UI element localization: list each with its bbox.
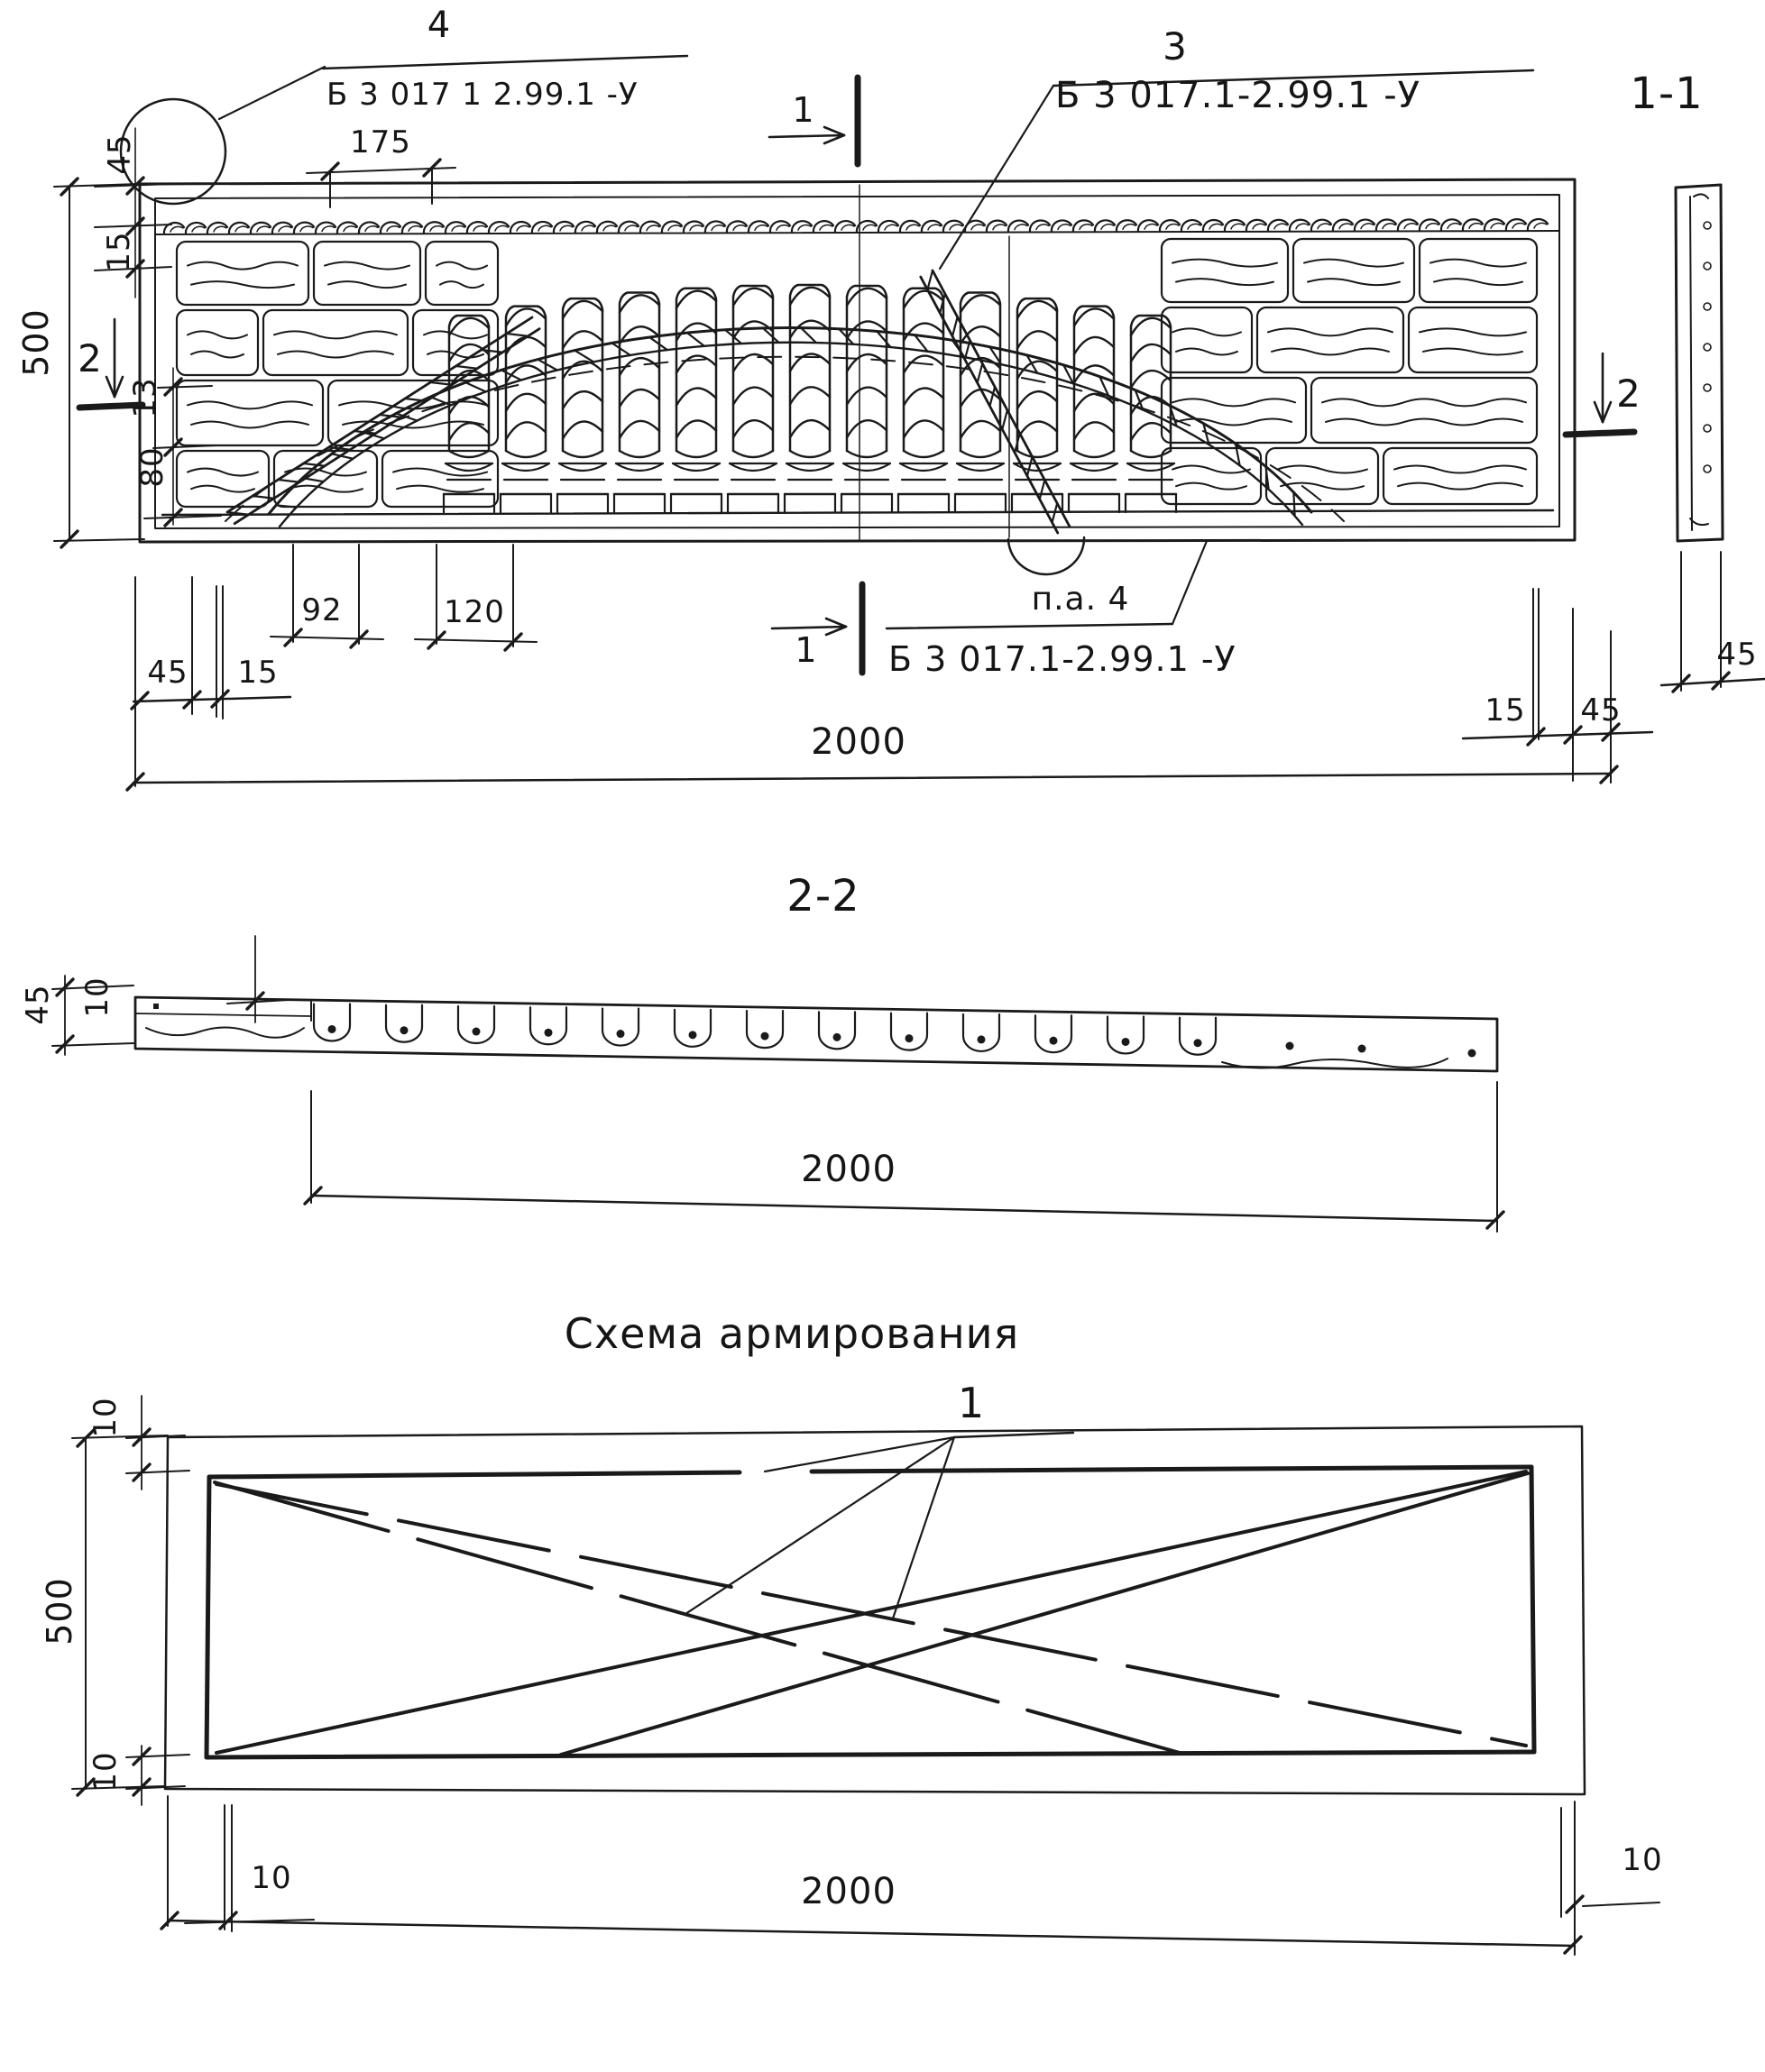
section-1-1-title: 1-1 — [1630, 72, 1703, 115]
callout-pa4-label: п.а. 4 — [1032, 583, 1130, 616]
section-1-1-view — [1661, 185, 1765, 692]
dim-45-section11: 45 — [1716, 639, 1757, 670]
section-mark-2-left: 2 — [78, 340, 103, 378]
section-mark-2-right: 2 — [1616, 375, 1641, 413]
dim-10-scheme-right: 10 — [1622, 1845, 1662, 1875]
dim-500-main: 500 — [19, 308, 53, 377]
dim-80: 80 — [137, 446, 168, 487]
dim-2000-scheme: 2000 — [801, 1874, 896, 1910]
technical-drawing-canvas — [0, 0, 1765, 2072]
callout-4-number: 4 — [427, 7, 451, 43]
section-2-2-view — [52, 936, 1503, 1232]
dim-92: 92 — [301, 595, 342, 626]
dim-45-section22: 45 — [23, 984, 53, 1024]
callout-3-number: 3 — [1163, 28, 1188, 66]
dim-15-bottom-right: 15 — [1485, 695, 1525, 726]
dim-10-scheme-top: 10 — [90, 1397, 121, 1437]
dim-15-top-left: 15 — [104, 231, 134, 271]
callout-pa4-code: Б 3 017.1-2.99.1 -У — [888, 642, 1236, 676]
dim-10-section22: 10 — [82, 976, 113, 1017]
blueprint-page: { "drawing": { "ink": "#1a1a1a", "main_v… — [0, 0, 1765, 2072]
callout-3-code: Б 3 017.1-2.99.1 -У — [1055, 78, 1420, 114]
section-2-2-title: 2-2 — [786, 875, 860, 918]
scheme-title: Схема армирования — [565, 1313, 1019, 1354]
dim-45-bottom-left: 45 — [147, 657, 188, 688]
callout-4-code: Б 3 017 1 2.99.1 -У — [326, 79, 639, 110]
dim-2000-main: 2000 — [811, 724, 906, 760]
fence-panel-elevation — [140, 179, 1575, 542]
dim-120: 120 — [444, 597, 505, 628]
dim-2000-section22: 2000 — [801, 1151, 896, 1187]
dim-10-scheme-bottom-b: 10 — [251, 1863, 291, 1893]
dim-500-scheme: 500 — [42, 1577, 77, 1646]
dim-13: 13 — [130, 377, 161, 417]
dim-15-bottom-left: 15 — [237, 657, 278, 688]
dim-10-scheme-bottom-a: 10 — [90, 1751, 121, 1792]
scheme-callout-1: 1 — [958, 1382, 985, 1424]
dim-175: 175 — [350, 127, 411, 158]
section-mark-1-bottom: 1 — [795, 633, 817, 667]
dim-45-bottom-right: 45 — [1580, 695, 1621, 726]
dim-45-top-left: 45 — [105, 133, 135, 174]
section-mark-1-top: 1 — [792, 93, 814, 127]
